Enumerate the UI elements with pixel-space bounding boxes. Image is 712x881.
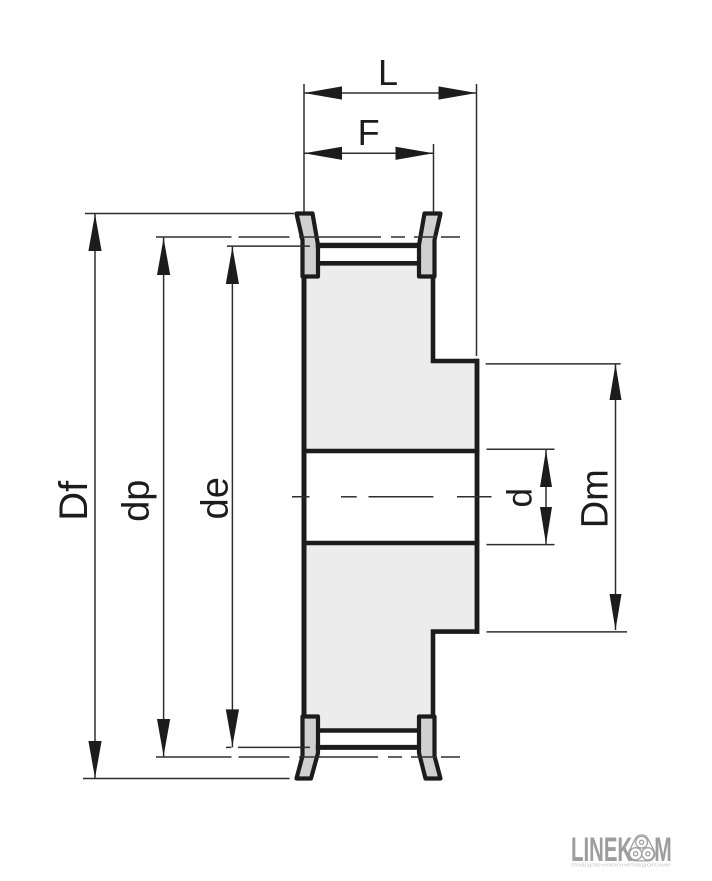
svg-text:dp: dp bbox=[116, 480, 158, 522]
svg-text:Dm: Dm bbox=[575, 469, 617, 528]
svg-text:ПРОИЗВОДСТВЕННАЯ КОМПАНИЯ ПРИВ: ПРОИЗВОДСТВЕННАЯ КОМПАНИЯ ПРИВОДНОЙ ТЕХН… bbox=[571, 861, 670, 868]
svg-text:d: d bbox=[501, 488, 540, 507]
svg-text:de: de bbox=[195, 477, 237, 519]
svg-text:L: L bbox=[378, 52, 398, 93]
svg-text:Df: Df bbox=[52, 480, 96, 521]
svg-text:F: F bbox=[358, 112, 380, 153]
